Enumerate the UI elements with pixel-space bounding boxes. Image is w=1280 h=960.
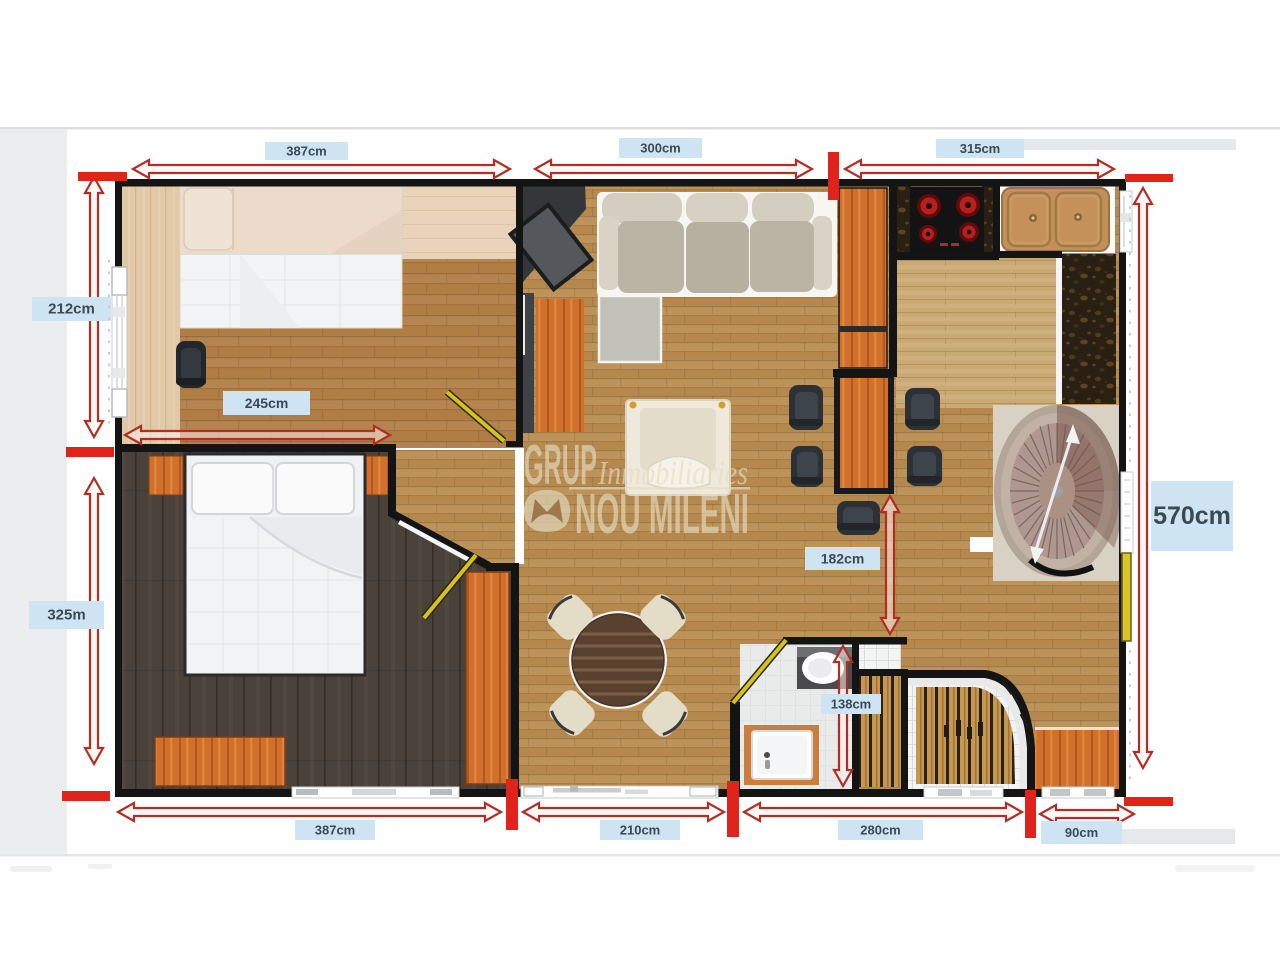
svg-text:325m: 325m	[47, 607, 85, 624]
svg-text:570cm: 570cm	[1153, 502, 1231, 530]
svg-text:212cm: 212cm	[48, 301, 95, 318]
svg-text:387cm: 387cm	[286, 144, 326, 159]
svg-text:300cm: 300cm	[640, 141, 680, 156]
svg-text:245cm: 245cm	[245, 395, 289, 411]
svg-text:210cm: 210cm	[620, 823, 660, 838]
svg-text:NOU MILENI: NOU MILENI	[575, 482, 749, 546]
svg-text:387cm: 387cm	[315, 823, 355, 838]
svg-text:280cm: 280cm	[860, 823, 900, 838]
svg-text:138cm: 138cm	[831, 697, 871, 712]
svg-text:315cm: 315cm	[960, 141, 1000, 156]
svg-text:90cm: 90cm	[1065, 825, 1098, 840]
svg-text:182cm: 182cm	[821, 551, 865, 567]
